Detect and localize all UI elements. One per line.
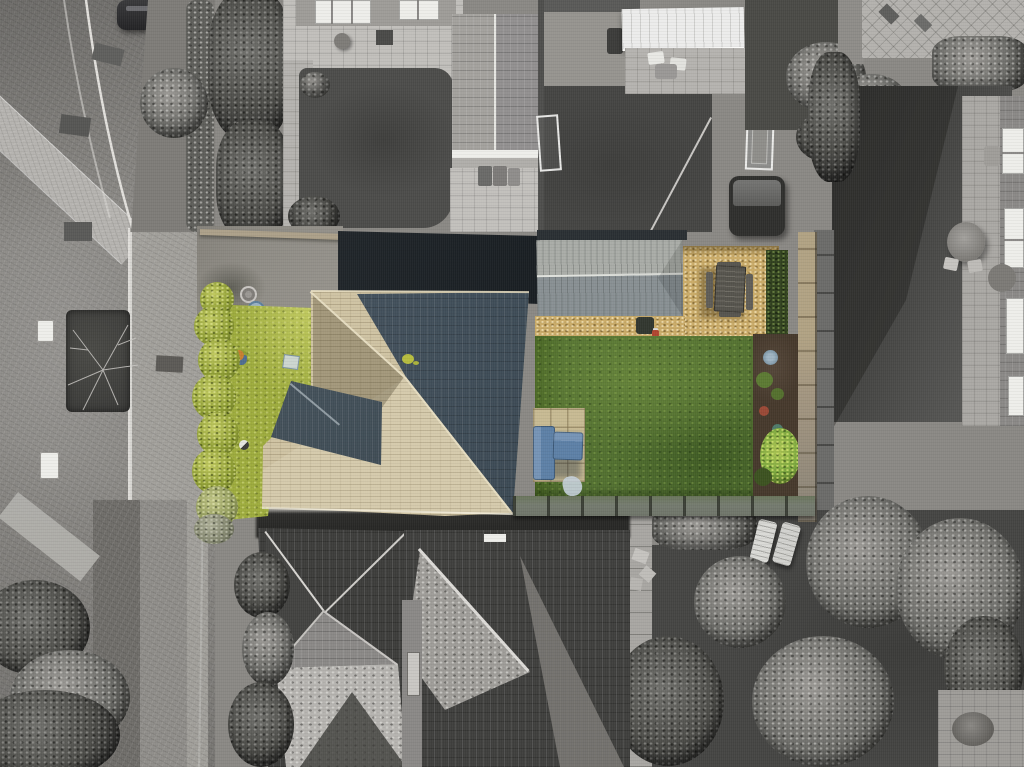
front-hedge bbox=[192, 282, 242, 538]
utility-box-2 bbox=[40, 452, 59, 479]
nr-window-1 bbox=[1002, 128, 1024, 174]
br-tree-6 bbox=[752, 636, 894, 767]
utility-box-1 bbox=[37, 320, 54, 342]
neighbor-garage-roof-west bbox=[452, 14, 496, 152]
gravel-shadow-top bbox=[683, 246, 779, 256]
sofa-back bbox=[533, 426, 555, 480]
patio-table-2 bbox=[655, 64, 677, 79]
br-far-table bbox=[952, 712, 994, 746]
nr-chair-1 bbox=[943, 257, 959, 272]
football-goal bbox=[536, 114, 562, 171]
nr-round-table bbox=[947, 222, 985, 262]
nr-window-3 bbox=[1006, 298, 1024, 354]
skylight-1 bbox=[315, 0, 371, 24]
skylight-2 bbox=[399, 0, 439, 20]
garden-couch-grey bbox=[607, 28, 623, 54]
patio-chair-1 bbox=[647, 51, 665, 65]
bottom-trees-left-2 bbox=[242, 612, 294, 686]
path-paver-3 bbox=[629, 577, 643, 591]
dining-table-set bbox=[706, 262, 754, 318]
neighbor-tl-plant bbox=[300, 72, 330, 98]
driveway-bottom-left-light bbox=[140, 500, 187, 767]
road-patch-2 bbox=[59, 114, 91, 137]
sofa-chaise bbox=[553, 431, 584, 460]
wheelie-bin-3 bbox=[508, 168, 520, 186]
dining-bench-left bbox=[706, 272, 713, 308]
bed-plant-3 bbox=[754, 468, 772, 486]
wheelie-bin-1 bbox=[478, 166, 492, 186]
bare-tree-branches bbox=[58, 310, 148, 420]
patio-table-round bbox=[334, 33, 350, 49]
paving-slab-toy bbox=[283, 355, 299, 369]
neighbor-garage-roof-east bbox=[496, 14, 538, 152]
fence-neighbor-side bbox=[814, 230, 834, 522]
hedge-blob bbox=[194, 514, 234, 544]
nr-chair-2 bbox=[967, 259, 983, 273]
gap-chimney bbox=[407, 652, 420, 696]
bed-pot-blue bbox=[763, 350, 778, 365]
scene bbox=[0, 0, 1024, 767]
garden-sofa-set bbox=[533, 426, 587, 484]
pergola-fence-line bbox=[513, 496, 815, 516]
nr-window-2 bbox=[1004, 208, 1024, 268]
dining-table bbox=[714, 265, 746, 313]
dining-bench-right bbox=[746, 274, 753, 310]
bed-plant-red bbox=[759, 406, 769, 416]
boundary-shrubs-top bbox=[208, 0, 293, 140]
patio-dark-mat bbox=[376, 30, 393, 45]
verge-tree bbox=[140, 68, 208, 138]
br-tree-4 bbox=[694, 556, 786, 648]
nr-trees-left bbox=[808, 52, 860, 182]
awning-patio bbox=[625, 48, 745, 94]
nr-chair-3 bbox=[984, 146, 1000, 166]
roof-moss-spot bbox=[402, 354, 414, 364]
neighbor-garage-ridge bbox=[494, 14, 496, 152]
extension-top-shadow bbox=[537, 230, 687, 240]
nr-shrub-row bbox=[932, 36, 1024, 92]
nr-window-4 bbox=[1008, 376, 1024, 416]
hot-tub-lid bbox=[733, 180, 781, 206]
road-patch-4 bbox=[156, 355, 184, 372]
bottom-trees-left-1 bbox=[234, 552, 290, 618]
garden-fence-right bbox=[798, 232, 817, 522]
bottom-trees-left-3 bbox=[228, 682, 294, 767]
road-patch-3 bbox=[64, 222, 92, 241]
awning bbox=[622, 7, 745, 49]
boundary-shrubs-top-2 bbox=[216, 120, 291, 240]
gravel-hedge-strip bbox=[766, 250, 788, 338]
bed-plant-2 bbox=[771, 388, 784, 400]
bed-plant-1 bbox=[756, 372, 773, 388]
nr-seat-2 bbox=[988, 264, 1016, 292]
bottom-house-B-trim bbox=[484, 534, 506, 542]
wheelie-bin-2 bbox=[493, 166, 507, 186]
